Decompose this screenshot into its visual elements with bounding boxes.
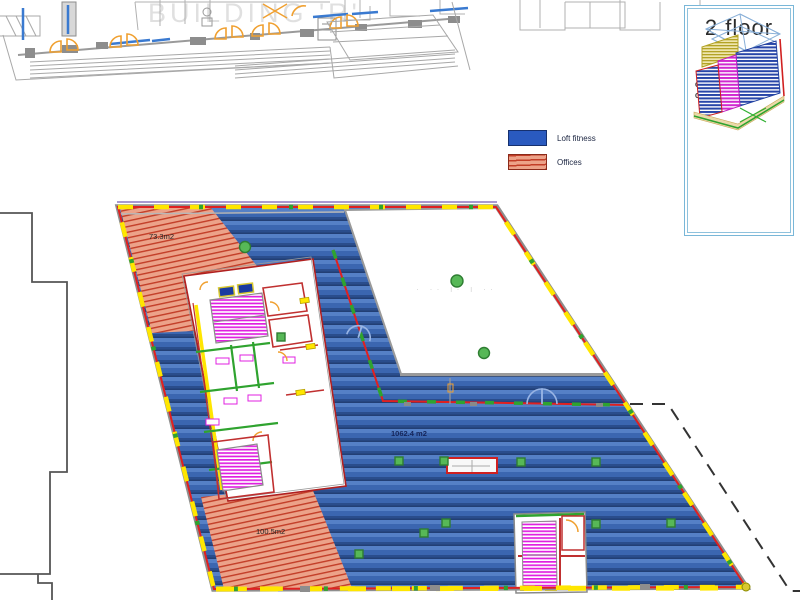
- main-floor-plan: [117, 202, 750, 593]
- background-neighbor-plan: BUILDING 'R': [0, 0, 730, 80]
- legend: Loft fitness Offices: [508, 130, 596, 178]
- legend-label: Offices: [557, 158, 582, 167]
- legend-item-loft-fitness: Loft fitness: [508, 130, 596, 146]
- legend-item-offices: Offices: [508, 154, 596, 170]
- loft-fitness-swatch: [508, 130, 547, 146]
- legend-label: Loft fitness: [557, 134, 596, 143]
- reception-desk: [447, 458, 497, 473]
- faint-annotation: · ·· ı· ı ··: [416, 284, 497, 294]
- axonometric-building-thumbnail: [688, 9, 790, 131]
- loft-fitness-label: 1062.4 m2: [391, 429, 427, 438]
- offices-swatch: [508, 154, 547, 170]
- offices-lower-label: 100.5m2: [256, 527, 285, 536]
- floor-plan-page: BUILDING 'R': [0, 0, 800, 600]
- title-block-inner: 2 floor GBA- 1587.1 m2 GLA- 1064.2m2: [687, 8, 791, 233]
- stair-core-bottom: [514, 512, 587, 593]
- column-dot: [240, 242, 251, 253]
- column-dot: [479, 348, 490, 359]
- offices-upper-label: 73.3m2: [149, 232, 174, 241]
- neighbor-building-outline: [0, 213, 67, 600]
- title-block-panel: 2 floor GBA- 1587.1 m2 GLA- 1064.2m2: [684, 5, 794, 236]
- plan-drawing: BUILDING 'R': [0, 0, 800, 600]
